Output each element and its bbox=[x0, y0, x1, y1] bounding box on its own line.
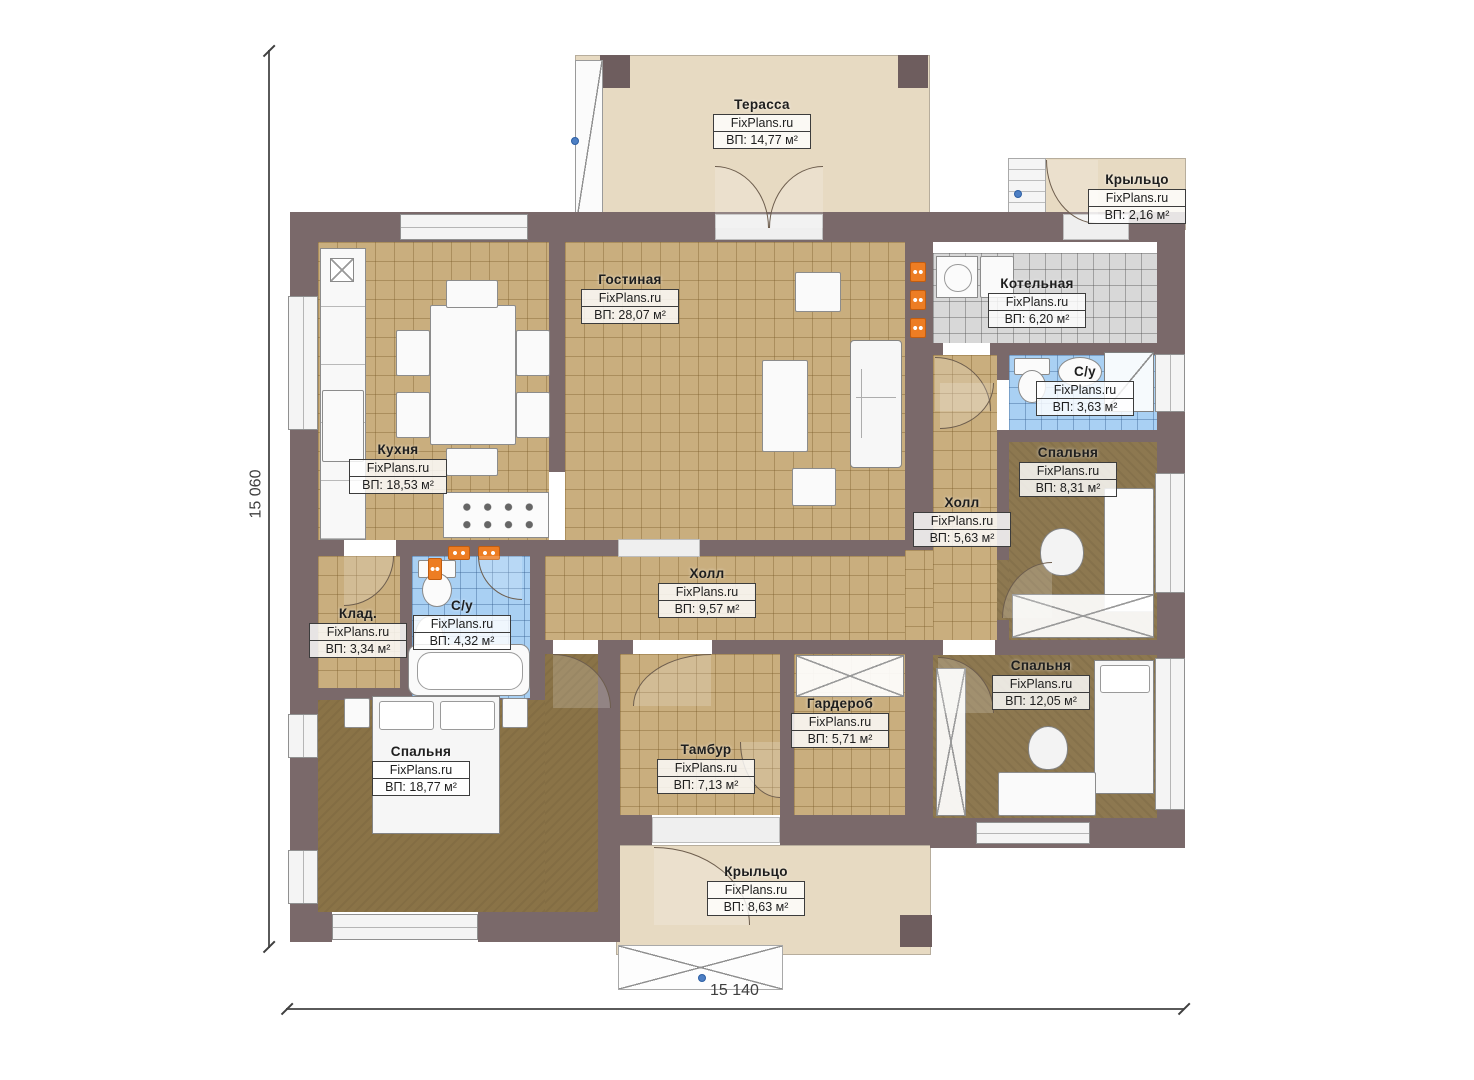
room-label-vestibule: Тамбур FixPlans.ru ВП: 7,13 м² bbox=[657, 742, 755, 794]
room-area: ВП: 18,77 м² bbox=[373, 779, 469, 795]
wall-segment bbox=[396, 540, 618, 556]
floor-plan-page: 15 060 15 140 Терасса FixPlans.ru ВП: 14… bbox=[0, 0, 1474, 1080]
room-area: ВП: 12,05 м² bbox=[993, 693, 1089, 709]
chair bbox=[516, 392, 550, 438]
watermark: FixPlans.ru bbox=[989, 294, 1085, 311]
room-label-porch-top: Крыльцо FixPlans.ru ВП: 2,16 м² bbox=[1088, 172, 1186, 224]
wall-bottom bbox=[780, 815, 930, 845]
terrace-side-window bbox=[575, 60, 603, 226]
wall-segment bbox=[905, 640, 933, 818]
wall-segment bbox=[712, 640, 905, 654]
wall-segment bbox=[933, 343, 943, 355]
room-area: ВП: 4,32 м² bbox=[414, 633, 510, 649]
room-label-terrace: Терасса FixPlans.ru ВП: 14,77 м² bbox=[713, 97, 811, 149]
room-area: ВП: 7,13 м² bbox=[658, 777, 754, 793]
chair bbox=[396, 392, 430, 438]
watermark: FixPlans.ru bbox=[659, 584, 755, 601]
wall-segment bbox=[933, 640, 943, 655]
watermark: FixPlans.ru bbox=[373, 762, 469, 779]
kitchen-hob-mark bbox=[330, 258, 354, 282]
radiator bbox=[428, 558, 442, 580]
watermark: FixPlans.ru bbox=[792, 714, 888, 731]
room-name: Спальня bbox=[1019, 445, 1117, 460]
wall-segment bbox=[997, 343, 1009, 380]
desk bbox=[998, 772, 1096, 816]
office-chair bbox=[1028, 726, 1068, 770]
room-name: Тамбур bbox=[657, 742, 755, 757]
radiator bbox=[910, 318, 926, 338]
chair bbox=[446, 448, 498, 476]
room-label-hall-small: Холл FixPlans.ru ВП: 5,63 м² bbox=[913, 495, 1011, 547]
chair bbox=[446, 280, 498, 308]
room-area: ВП: 3,34 м² bbox=[310, 641, 406, 657]
window bbox=[1155, 473, 1185, 593]
opening-threshold bbox=[618, 539, 700, 557]
sofa bbox=[850, 340, 902, 468]
watermark: FixPlans.ru bbox=[350, 460, 446, 477]
terrace-pillar bbox=[600, 55, 630, 88]
room-area: ВП: 18,53 м² bbox=[350, 477, 446, 493]
room-area: ВП: 5,63 м² bbox=[914, 530, 1010, 546]
room-label-bedroom-sw: Спальня FixPlans.ru ВП: 18,77 м² bbox=[372, 744, 470, 796]
room-name: Спальня bbox=[992, 658, 1090, 673]
washing-machine bbox=[936, 256, 978, 298]
entry-door-opening bbox=[652, 817, 780, 843]
room-label-wardrobe: Гардероб FixPlans.ru ВП: 5,71 м² bbox=[791, 696, 889, 748]
wall-segment bbox=[318, 540, 344, 556]
room-label-boiler: Котельная FixPlans.ru ВП: 6,20 м² bbox=[988, 276, 1086, 328]
room-name: Крыльцо bbox=[707, 864, 805, 879]
radiator bbox=[910, 290, 926, 310]
watermark: FixPlans.ru bbox=[658, 760, 754, 777]
wall-bottom bbox=[616, 815, 652, 845]
bed bbox=[1094, 660, 1154, 794]
window bbox=[400, 214, 528, 240]
watermark: FixPlans.ru bbox=[310, 624, 406, 641]
watermark: FixPlans.ru bbox=[414, 616, 510, 633]
room-area: ВП: 2,16 м² bbox=[1089, 207, 1185, 223]
room-label-bathroom-left: С/у FixPlans.ru ВП: 4,32 м² bbox=[413, 598, 511, 650]
wall-segment bbox=[995, 640, 1157, 655]
dimension-label-width: 15 140 bbox=[710, 982, 759, 1000]
bathtub bbox=[408, 644, 530, 696]
room-name: Кухня bbox=[349, 442, 447, 457]
room-label-bedroom-right: Спальня FixPlans.ru ВП: 8,31 м² bbox=[1019, 445, 1117, 497]
stove bbox=[443, 492, 549, 538]
coffee-table bbox=[762, 360, 808, 452]
window bbox=[288, 714, 318, 758]
porch-pillar bbox=[900, 915, 932, 947]
room-area: ВП: 6,20 м² bbox=[989, 311, 1085, 327]
window bbox=[332, 914, 478, 940]
room-area: ВП: 8,63 м² bbox=[708, 899, 804, 915]
room-name: Холл bbox=[658, 566, 756, 581]
window bbox=[288, 850, 318, 904]
room-area: ВП: 5,71 м² bbox=[792, 731, 888, 747]
dimension-line-vertical bbox=[268, 50, 270, 948]
room-area: ВП: 3,63 м² bbox=[1037, 399, 1133, 415]
nightstand bbox=[502, 698, 528, 728]
wall-segment bbox=[545, 640, 553, 654]
watermark: FixPlans.ru bbox=[1089, 190, 1185, 207]
survey-marker bbox=[698, 974, 706, 982]
wall-segment bbox=[1009, 430, 1157, 442]
room-name: Холл bbox=[913, 495, 1011, 510]
room-name: Крыльцо bbox=[1088, 172, 1186, 187]
wall-segment bbox=[549, 242, 565, 472]
wall-segment bbox=[997, 620, 1009, 640]
wardrobe-cabinet bbox=[796, 655, 904, 697]
dining-table bbox=[430, 305, 516, 445]
room-area: ВП: 14,77 м² bbox=[714, 132, 810, 148]
wall-segment bbox=[700, 540, 905, 556]
watermark: FixPlans.ru bbox=[1020, 463, 1116, 480]
dimension-line-horizontal bbox=[286, 1008, 1184, 1010]
watermark: FixPlans.ru bbox=[708, 882, 804, 899]
wall-bottom bbox=[290, 912, 332, 942]
radiator bbox=[448, 546, 470, 560]
room-name: Котельная bbox=[988, 276, 1086, 291]
room-label-storage: Клад. FixPlans.ru ВП: 3,34 м² bbox=[309, 606, 407, 658]
hall-passage bbox=[905, 550, 933, 640]
room-label-kitchen: Кухня FixPlans.ru ВП: 18,53 м² bbox=[349, 442, 447, 494]
watermark: FixPlans.ru bbox=[914, 513, 1010, 530]
chair bbox=[516, 330, 550, 376]
wall-segment bbox=[613, 640, 633, 654]
room-area: ВП: 8,31 м² bbox=[1020, 480, 1116, 496]
armchair bbox=[792, 468, 836, 506]
radiator bbox=[910, 262, 926, 282]
chair bbox=[396, 330, 430, 376]
watermark: FixPlans.ru bbox=[714, 115, 810, 132]
room-name: Спальня bbox=[372, 744, 470, 759]
room-name: Терасса bbox=[713, 97, 811, 112]
room-label-living: Гостиная FixPlans.ru ВП: 28,07 м² bbox=[581, 272, 679, 324]
room-label-hall-main: Холл FixPlans.ru ВП: 9,57 м² bbox=[658, 566, 756, 618]
nightstand bbox=[344, 698, 370, 728]
watermark: FixPlans.ru bbox=[1037, 382, 1133, 399]
wall-segment bbox=[530, 556, 545, 700]
room-name: Гардероб bbox=[791, 696, 889, 711]
terrace-pillar bbox=[898, 55, 928, 88]
room-name: С/у bbox=[1036, 364, 1134, 379]
watermark: FixPlans.ru bbox=[993, 676, 1089, 693]
window bbox=[288, 296, 318, 430]
room-label-bathroom-right: С/у FixPlans.ru ВП: 3,63 м² bbox=[1036, 364, 1134, 416]
room-area: ВП: 28,07 м² bbox=[582, 307, 678, 323]
room-name: С/у bbox=[413, 598, 511, 613]
room-label-porch-bottom: Крыльцо FixPlans.ru ВП: 8,63 м² bbox=[707, 864, 805, 916]
dimension-label-height: 15 060 bbox=[247, 470, 265, 519]
survey-marker bbox=[1014, 190, 1022, 198]
window bbox=[976, 822, 1090, 844]
room-area: ВП: 9,57 м² bbox=[659, 601, 755, 617]
watermark: FixPlans.ru bbox=[582, 290, 678, 307]
window bbox=[1155, 354, 1185, 412]
survey-marker bbox=[571, 137, 579, 145]
room-name: Гостиная bbox=[581, 272, 679, 287]
armchair bbox=[795, 272, 841, 312]
window bbox=[1155, 658, 1185, 810]
room-label-bedroom-se: Спальня FixPlans.ru ВП: 12,05 м² bbox=[992, 658, 1090, 710]
room-name: Клад. bbox=[309, 606, 407, 621]
